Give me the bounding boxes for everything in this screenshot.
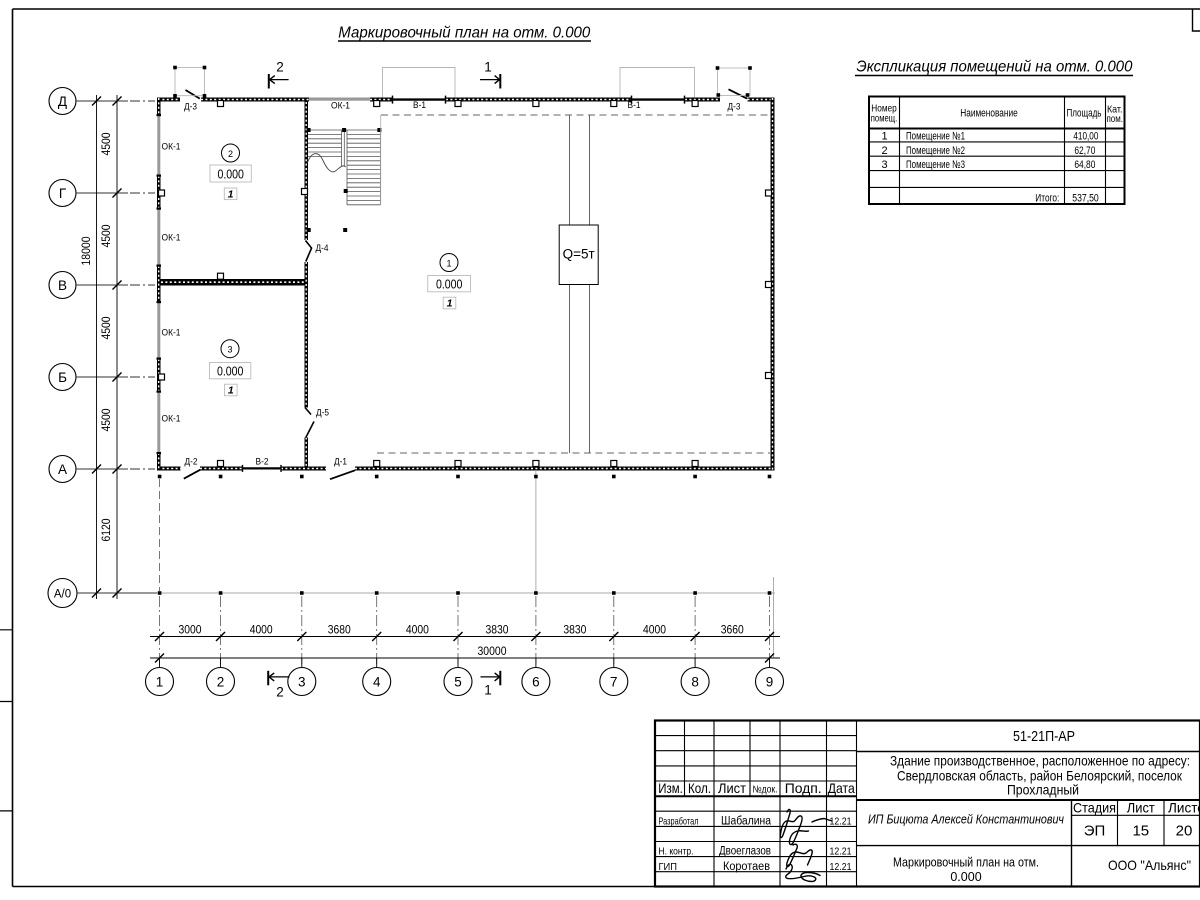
svg-text:ОК-1: ОК-1 <box>162 414 181 425</box>
svg-text:62,70: 62,70 <box>1074 145 1095 157</box>
svg-text:1: 1 <box>156 674 164 689</box>
svg-text:Итого:: Итого: <box>1035 192 1059 204</box>
svg-text:Лист: Лист <box>718 780 747 796</box>
svg-text:Помещение №3: Помещение №3 <box>906 159 965 171</box>
svg-text:Экспликация помещений на отм.: Экспликация помещений на отм. 0.000 <box>856 59 1132 76</box>
svg-text:51-21П-АР: 51-21П-АР <box>1013 729 1075 745</box>
svg-text:12.21: 12.21 <box>830 861 852 873</box>
svg-text:ОК-1: ОК-1 <box>162 142 181 153</box>
svg-text:5: 5 <box>454 674 462 689</box>
svg-text:1: 1 <box>228 385 234 397</box>
svg-text:Д-3: Д-3 <box>184 102 197 113</box>
svg-text:пом.: пом. <box>1106 113 1123 125</box>
svg-text:ИП Бицюта Алексей Константинов: ИП Бицюта Алексей Константинович <box>868 812 1064 827</box>
svg-text:3000: 3000 <box>179 623 202 637</box>
svg-text:64,80: 64,80 <box>1074 159 1095 171</box>
svg-text:8: 8 <box>691 674 699 689</box>
svg-text:Д: Д <box>58 94 67 109</box>
svg-text:3: 3 <box>227 345 232 355</box>
svg-text:4000: 4000 <box>406 623 429 637</box>
svg-text:20: 20 <box>1176 823 1193 840</box>
svg-text:Маркировочный план на отм. 0.0: Маркировочный план на отм. 0.000 <box>338 25 590 42</box>
svg-text:Д-5: Д-5 <box>316 408 329 419</box>
svg-text:Д-1: Д-1 <box>334 457 347 468</box>
svg-text:12.21: 12.21 <box>830 816 852 828</box>
svg-text:2: 2 <box>276 59 284 74</box>
svg-text:Площадь: Площадь <box>1067 108 1102 120</box>
svg-text:4500: 4500 <box>99 316 113 339</box>
svg-text:12.21: 12.21 <box>830 846 852 858</box>
svg-text:Двоеглазов: Двоеглазов <box>719 846 771 858</box>
svg-text:3: 3 <box>881 159 887 171</box>
svg-text:4000: 4000 <box>643 623 666 637</box>
svg-text:4000: 4000 <box>250 623 273 637</box>
svg-text:В-1: В-1 <box>628 100 641 111</box>
svg-text:Д-3: Д-3 <box>728 102 741 113</box>
svg-text:№док.: №док. <box>753 785 778 796</box>
svg-text:0.000: 0.000 <box>217 167 244 181</box>
svg-text:537,50: 537,50 <box>1072 192 1099 204</box>
svg-text:18000: 18000 <box>79 236 93 265</box>
svg-text:В-1: В-1 <box>413 100 426 111</box>
svg-text:9: 9 <box>766 674 774 689</box>
svg-text:ООО "Альянс": ООО "Альянс" <box>1108 857 1191 873</box>
svg-text:2: 2 <box>276 685 284 700</box>
svg-text:3: 3 <box>298 674 306 689</box>
svg-text:Д-2: Д-2 <box>185 457 198 468</box>
svg-text:1: 1 <box>484 683 492 698</box>
svg-text:Прохладный: Прохладный <box>1007 782 1079 798</box>
svg-text:Шабалина: Шабалина <box>721 816 772 828</box>
svg-text:Дата: Дата <box>828 780 855 796</box>
svg-text:ГИП: ГИП <box>659 861 678 873</box>
svg-text:2: 2 <box>217 674 225 689</box>
svg-text:6: 6 <box>532 674 540 689</box>
svg-text:Помещение №2: Помещение №2 <box>906 145 965 157</box>
svg-text:3680: 3680 <box>328 623 351 637</box>
svg-text:ОК-1: ОК-1 <box>331 101 350 112</box>
svg-text:Стадия: Стадия <box>1073 799 1116 815</box>
svg-text:В-2: В-2 <box>256 457 269 468</box>
svg-text:0.000: 0.000 <box>436 277 463 291</box>
svg-text:4500: 4500 <box>99 132 113 155</box>
svg-text:Д-4: Д-4 <box>316 243 329 254</box>
svg-text:3830: 3830 <box>563 623 586 637</box>
svg-text:Листов: Листов <box>1168 799 1200 815</box>
svg-text:1: 1 <box>447 298 453 310</box>
svg-text:Н. контр.: Н. контр. <box>659 846 694 858</box>
svg-text:Коротаев: Коротаев <box>723 861 770 873</box>
svg-text:4500: 4500 <box>99 408 113 431</box>
svg-text:Кол.: Кол. <box>688 780 711 796</box>
svg-text:3660: 3660 <box>721 623 744 637</box>
svg-text:Г: Г <box>59 186 67 201</box>
svg-text:1: 1 <box>881 131 887 143</box>
svg-text:А/0: А/0 <box>54 588 71 600</box>
svg-text:3830: 3830 <box>486 623 509 637</box>
svg-text:ЭП: ЭП <box>1084 823 1106 840</box>
svg-text:А: А <box>58 462 67 477</box>
svg-text:2: 2 <box>881 145 887 157</box>
svg-text:В: В <box>58 278 67 293</box>
svg-text:Маркировочный план на отм.: Маркировочный план на отм. <box>893 856 1039 870</box>
svg-text:Б: Б <box>58 370 67 385</box>
svg-text:Лист: Лист <box>1127 799 1156 815</box>
svg-text:0.000: 0.000 <box>950 870 981 884</box>
svg-text:0.000: 0.000 <box>217 364 244 378</box>
svg-text:410,00: 410,00 <box>1073 131 1098 143</box>
svg-text:ОК-1: ОК-1 <box>162 233 181 244</box>
svg-text:Помещение №1: Помещение №1 <box>906 131 965 143</box>
svg-text:Изм.: Изм. <box>658 780 683 796</box>
svg-text:15: 15 <box>1132 823 1149 840</box>
svg-text:2: 2 <box>228 149 233 159</box>
svg-text:Здание производственное, распо: Здание производственное, расположенное п… <box>890 752 1190 768</box>
svg-text:Наименование: Наименование <box>960 108 1018 120</box>
svg-text:Q=5т: Q=5т <box>563 247 595 262</box>
svg-text:6120: 6120 <box>99 518 113 541</box>
svg-text:ОК-1: ОК-1 <box>162 328 181 339</box>
svg-text:Разработал: Разработал <box>659 816 699 828</box>
svg-text:1: 1 <box>446 258 451 268</box>
svg-text:1: 1 <box>228 188 234 200</box>
svg-text:7: 7 <box>610 674 618 689</box>
svg-text:4: 4 <box>373 674 381 689</box>
svg-text:4500: 4500 <box>99 224 113 247</box>
svg-text:1: 1 <box>484 59 492 74</box>
svg-text:30000: 30000 <box>478 644 507 658</box>
svg-text:помещ.: помещ. <box>871 112 898 124</box>
svg-text:Подп.: Подп. <box>785 780 822 796</box>
